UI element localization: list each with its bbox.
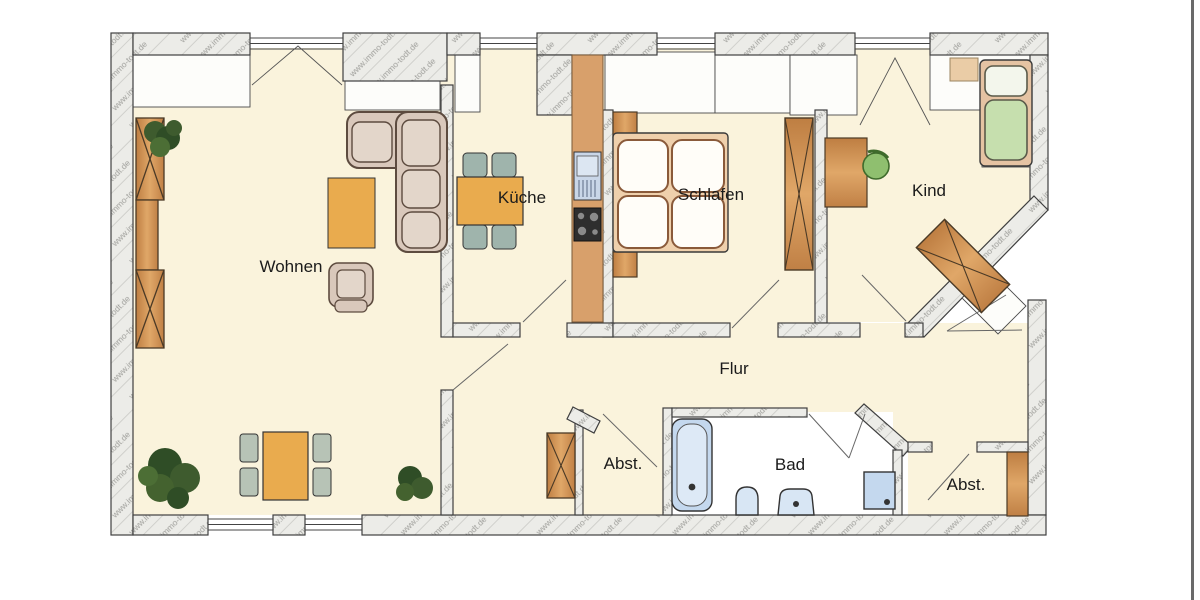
dining-chair — [313, 434, 331, 462]
sink — [778, 489, 814, 515]
wall-bottom — [273, 515, 305, 535]
kitchen-chair — [463, 153, 487, 177]
kitchen-chair — [463, 225, 487, 249]
kitchen-stove — [574, 208, 601, 241]
dining-chair — [240, 468, 258, 496]
wall-top — [715, 33, 855, 55]
label-storage-right: Abst. — [947, 475, 986, 494]
wall-living-hall — [441, 390, 453, 515]
toilet — [736, 487, 758, 515]
label-living: Wohnen — [259, 257, 322, 276]
window-bottom-2 — [305, 519, 362, 530]
label-child: Kind — [912, 181, 946, 200]
wall-top — [537, 33, 657, 55]
wall-bottom — [362, 515, 1046, 535]
wall-corridor — [905, 323, 923, 337]
dining-chair — [313, 468, 331, 496]
window-kitchen — [480, 38, 537, 49]
wall-left — [111, 33, 133, 535]
storage-shelf — [1007, 452, 1028, 516]
niche — [790, 55, 857, 115]
wall-corridor — [453, 323, 520, 337]
wall-corridor — [567, 323, 613, 337]
shower — [864, 472, 895, 509]
kitchen-chair — [492, 225, 516, 249]
page-edge-line — [1191, 0, 1194, 600]
wall-storage-right-top — [977, 442, 1028, 452]
label-bedroom: Schlafen — [678, 185, 744, 204]
wall-storage-right-top — [908, 442, 932, 452]
niche — [133, 50, 250, 107]
wall-corridor — [778, 323, 860, 337]
floor-plan-page: www.immo-todt.de — [0, 0, 1200, 600]
coffee-table — [328, 178, 375, 248]
kid-nightstand — [950, 58, 978, 81]
kid-bed — [980, 60, 1032, 166]
wardrobe — [785, 118, 813, 270]
wall-top — [930, 33, 1048, 55]
label-hallway: Flur — [719, 359, 749, 378]
wall-top — [343, 33, 447, 81]
wall-bottom — [133, 515, 208, 535]
label-kitchen: Küche — [498, 188, 546, 207]
label-storage-mid: Abst. — [604, 454, 643, 473]
dining-chair — [240, 434, 258, 462]
kitchen-sink — [574, 152, 601, 200]
nightstand — [613, 252, 637, 277]
kitchen-chair — [492, 153, 516, 177]
niche — [345, 81, 440, 110]
bathtub — [672, 419, 712, 511]
window-bottom-1 — [208, 519, 273, 530]
wall-corridor — [613, 323, 730, 337]
wall-kitchen-bedroom — [603, 110, 613, 337]
wall-top — [133, 33, 250, 55]
wall-bath-top — [672, 408, 807, 417]
wall-bath-left — [663, 408, 672, 515]
window-bedroom — [657, 38, 715, 49]
label-bath: Bad — [775, 455, 805, 474]
desk — [825, 138, 867, 207]
floor-plan: www.immo-todt.de — [0, 0, 1200, 600]
hall-cabinet — [547, 433, 575, 498]
niche — [715, 50, 790, 113]
dining-table — [263, 432, 308, 500]
wall-top — [537, 55, 572, 115]
niche — [455, 52, 480, 112]
armchair — [329, 263, 373, 312]
niche — [605, 52, 715, 113]
wall-right-lower — [1028, 300, 1046, 515]
wall-top — [447, 33, 480, 55]
